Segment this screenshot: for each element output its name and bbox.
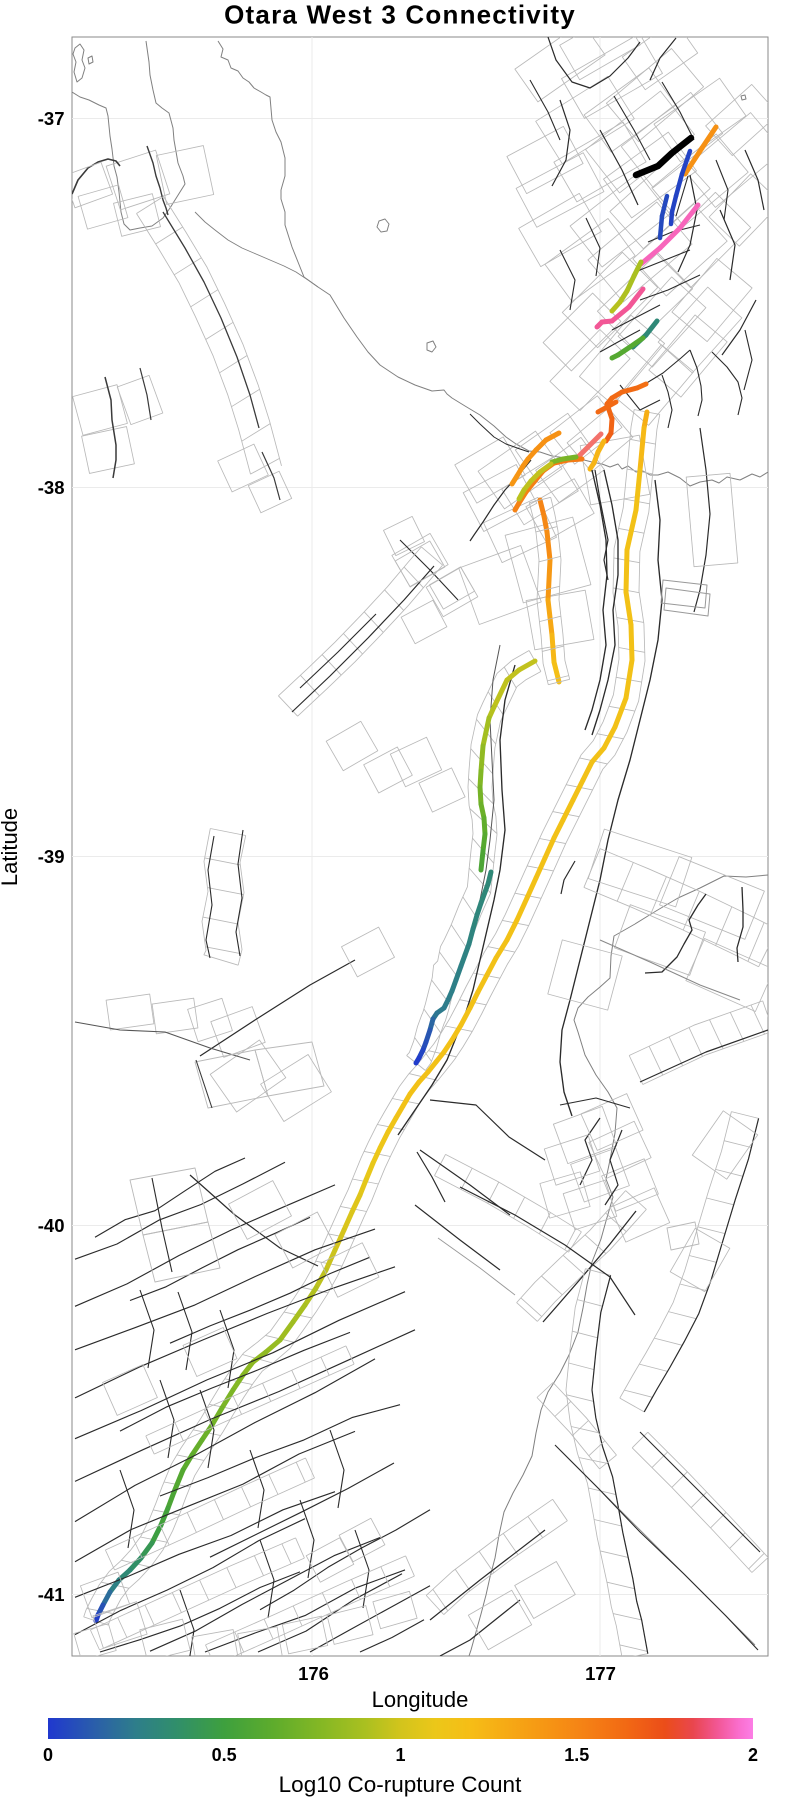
svg-text:2: 2 — [748, 1745, 758, 1765]
svg-text:0.5: 0.5 — [212, 1745, 237, 1765]
svg-text:177: 177 — [585, 1663, 616, 1684]
svg-text:176: 176 — [298, 1663, 329, 1684]
svg-text:1: 1 — [395, 1745, 405, 1765]
svg-text:0: 0 — [43, 1745, 53, 1765]
svg-text:1.5: 1.5 — [564, 1745, 589, 1765]
svg-text:-40: -40 — [38, 1215, 65, 1236]
svg-text:Log10 Co-rupture Count: Log10 Co-rupture Count — [279, 1772, 522, 1797]
svg-text:-41: -41 — [38, 1584, 65, 1605]
svg-text:-39: -39 — [38, 846, 65, 867]
svg-text:Latitude: Latitude — [0, 808, 22, 886]
svg-text:-38: -38 — [38, 477, 65, 498]
svg-text:-37: -37 — [38, 108, 65, 129]
svg-text:Longitude: Longitude — [372, 1687, 469, 1712]
svg-text:Otara West 3 Connectivity: Otara West 3 Connectivity — [224, 0, 576, 30]
